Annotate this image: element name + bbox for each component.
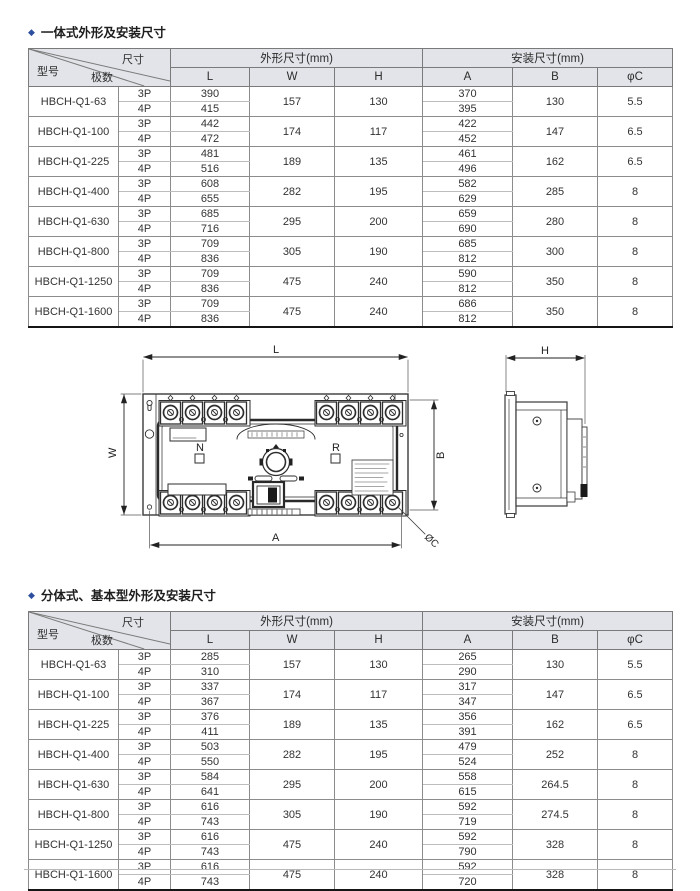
poles-3p-cell: 3P: [119, 267, 171, 282]
install-a-3p-cell: 370: [423, 87, 513, 102]
length-4p-cell: 516: [171, 162, 250, 177]
width-cell: 475: [250, 830, 335, 860]
col-header-H: H: [335, 631, 423, 650]
height-cell: 195: [335, 740, 423, 770]
install-a-3p-cell: 592: [423, 860, 513, 875]
model-cell: HBCH-Q1-100: [29, 680, 119, 710]
col-header-W: W: [250, 631, 335, 650]
table-row: HBCH-Q1-633P2851571302651305.5: [29, 650, 673, 665]
length-3p-cell: 608: [171, 177, 250, 192]
section1-title: ◆ 一体式外形及安装尺寸: [28, 22, 672, 41]
height-cell: 135: [335, 147, 423, 177]
switch-title-strip: [248, 431, 304, 438]
section2-title: ◆ 分体式、基本型外形及安装尺寸: [28, 585, 672, 604]
hole-diameter-cell: 5.5: [598, 650, 673, 680]
terminal-strip-top-left: [159, 401, 250, 427]
install-b-cell: 252: [513, 740, 598, 770]
col-header-A: A: [423, 68, 513, 87]
height-cell: 240: [335, 830, 423, 860]
width-cell: 157: [250, 87, 335, 117]
height-cell: 200: [335, 770, 423, 800]
col-header-A: A: [423, 631, 513, 650]
model-cell: HBCH-Q1-400: [29, 177, 119, 207]
install-b-cell: 285: [513, 177, 598, 207]
install-b-cell: 130: [513, 650, 598, 680]
hole-diameter-cell: 5.5: [598, 87, 673, 117]
width-cell: 174: [250, 117, 335, 147]
install-a-3p-cell: 265: [423, 650, 513, 665]
length-3p-cell: 616: [171, 830, 250, 845]
hole-diameter-cell: 8: [598, 297, 673, 328]
length-4p-cell: 411: [171, 725, 250, 740]
poles-3p-cell: 3P: [119, 177, 171, 192]
poles-3p-cell: 3P: [119, 770, 171, 785]
install-a-3p-cell: 582: [423, 177, 513, 192]
width-cell: 305: [250, 800, 335, 830]
width-cell: 189: [250, 710, 335, 740]
width-cell: 174: [250, 680, 335, 710]
technical-drawing: L W: [28, 342, 672, 575]
install-a-4p-cell: 720: [423, 875, 513, 891]
hole-diameter-cell: 8: [598, 207, 673, 237]
hole-diameter-cell: 8: [598, 770, 673, 800]
table-row: HBCH-Q1-2253P3761891353561626.5: [29, 710, 673, 725]
width-cell: 295: [250, 770, 335, 800]
front-view: L W: [107, 344, 447, 550]
install-a-3p-cell: 590: [423, 267, 513, 282]
hole-diameter-cell: 6.5: [598, 147, 673, 177]
table-row: HBCH-Q1-6303P6852952006592808: [29, 207, 673, 222]
outline-installation-drawing: L W: [28, 342, 672, 570]
install-b-cell: 280: [513, 207, 598, 237]
poles-4p-cell: 4P: [119, 725, 171, 740]
length-3p-cell: 616: [171, 800, 250, 815]
install-a-4p-cell: 452: [423, 132, 513, 147]
diamond-bullet-icon: ◆: [28, 591, 35, 600]
install-a-3p-cell: 479: [423, 740, 513, 755]
width-cell: 282: [250, 740, 335, 770]
install-b-cell: 300: [513, 237, 598, 267]
model-cell: HBCH-Q1-800: [29, 237, 119, 267]
table-row: HBCH-Q1-8003P616305190592274.58: [29, 800, 673, 815]
width-cell: 282: [250, 177, 335, 207]
poles-3p-cell: 3P: [119, 800, 171, 815]
install-b-cell: 328: [513, 830, 598, 860]
length-4p-cell: 367: [171, 695, 250, 710]
install-a-3p-cell: 685: [423, 237, 513, 252]
install-a-4p-cell: 347: [423, 695, 513, 710]
height-cell: 117: [335, 117, 423, 147]
length-3p-cell: 442: [171, 117, 250, 132]
install-b-cell: 274.5: [513, 800, 598, 830]
poles-4p-cell: 4P: [119, 132, 171, 147]
table-row: HBCH-Q1-16003P7094752406863508: [29, 297, 673, 312]
length-4p-cell: 641: [171, 785, 250, 800]
length-4p-cell: 716: [171, 222, 250, 237]
length-4p-cell: 836: [171, 252, 250, 267]
model-cell: HBCH-Q1-800: [29, 800, 119, 830]
height-cell: 240: [335, 860, 423, 891]
model-cell: HBCH-Q1-630: [29, 770, 119, 800]
outline-group-header: 外形尺寸(mm): [171, 612, 423, 631]
poles-3p-cell: 3P: [119, 147, 171, 162]
poles-4p-cell: 4P: [119, 845, 171, 860]
col-header-W: W: [250, 68, 335, 87]
dim-label-phiC: ØC: [422, 532, 441, 550]
table-row: HBCH-Q1-6303P584295200558264.58: [29, 770, 673, 785]
poles-4p-cell: 4P: [119, 695, 171, 710]
table-row: HBCH-Q1-2253P4811891354611626.5: [29, 147, 673, 162]
n-source-label: N: [196, 442, 204, 454]
length-3p-cell: 709: [171, 267, 250, 282]
poles-4p-cell: 4P: [119, 192, 171, 207]
poles-3p-cell: 3P: [119, 87, 171, 102]
table-row: HBCH-Q1-633P3901571303701305.5: [29, 87, 673, 102]
length-3p-cell: 685: [171, 207, 250, 222]
hole-diameter-cell: 6.5: [598, 710, 673, 740]
model-cell: HBCH-Q1-100: [29, 117, 119, 147]
col-header-B: B: [513, 68, 598, 87]
length-4p-cell: 743: [171, 815, 250, 830]
length-4p-cell: 836: [171, 312, 250, 328]
col-header-phiC: φC: [598, 68, 673, 87]
hole-diameter-cell: 6.5: [598, 117, 673, 147]
height-cell: 195: [335, 177, 423, 207]
install-b-cell: 350: [513, 297, 598, 328]
dim-label-A: A: [272, 532, 280, 544]
header-size-label: 尺寸: [122, 614, 144, 630]
height-cell: 240: [335, 297, 423, 328]
height-cell: 190: [335, 800, 423, 830]
install-a-3p-cell: 356: [423, 710, 513, 725]
table2-body: HBCH-Q1-633P2851571302651305.54P310290HB…: [29, 650, 673, 891]
table-row: HBCH-Q1-12503P7094752405903508: [29, 267, 673, 282]
install-a-4p-cell: 524: [423, 755, 513, 770]
length-3p-cell: 584: [171, 770, 250, 785]
model-cell: HBCH-Q1-1250: [29, 267, 119, 297]
length-3p-cell: 709: [171, 297, 250, 312]
model-cell: HBCH-Q1-63: [29, 650, 119, 680]
poles-4p-cell: 4P: [119, 755, 171, 770]
height-cell: 130: [335, 87, 423, 117]
install-a-4p-cell: 615: [423, 785, 513, 800]
poles-4p-cell: 4P: [119, 102, 171, 117]
width-cell: 475: [250, 297, 335, 328]
table-row: HBCH-Q1-1003P4421741174221476.5: [29, 117, 673, 132]
length-3p-cell: 616: [171, 860, 250, 875]
poles-4p-cell: 4P: [119, 162, 171, 177]
length-4p-cell: 550: [171, 755, 250, 770]
dim-label-W: W: [107, 447, 119, 458]
width-cell: 189: [250, 147, 335, 177]
section1-title-text: 一体式外形及安装尺寸: [41, 22, 166, 41]
width-cell: 475: [250, 267, 335, 297]
dim-label-B: B: [435, 452, 447, 459]
length-3p-cell: 481: [171, 147, 250, 162]
install-b-cell: 328: [513, 860, 598, 891]
install-b-cell: 162: [513, 147, 598, 177]
model-cell: HBCH-Q1-1600: [29, 860, 119, 891]
install-a-4p-cell: 690: [423, 222, 513, 237]
hole-diameter-cell: 8: [598, 237, 673, 267]
hole-diameter-cell: 8: [598, 860, 673, 891]
side-view: H: [505, 345, 588, 518]
install-b-cell: 264.5: [513, 770, 598, 800]
install-a-3p-cell: 558: [423, 770, 513, 785]
header-poles-label: 极数: [91, 632, 113, 648]
poles-4p-cell: 4P: [119, 665, 171, 680]
install-b-cell: 350: [513, 267, 598, 297]
split-basic-dimensions-table: 尺寸 型号 极数 外形尺寸(mm) 安装尺寸(mm) L W H A B φC …: [28, 611, 673, 891]
install-a-3p-cell: 422: [423, 117, 513, 132]
length-4p-cell: 836: [171, 282, 250, 297]
poles-3p-cell: 3P: [119, 297, 171, 312]
width-cell: 305: [250, 237, 335, 267]
table-row: HBCH-Q1-4003P5032821954792528: [29, 740, 673, 755]
header-model-label: 型号: [37, 63, 59, 79]
length-4p-cell: 743: [171, 845, 250, 860]
hole-diameter-cell: 8: [598, 177, 673, 207]
poles-4p-cell: 4P: [119, 312, 171, 328]
table-row: HBCH-Q1-16003P6164752405923288: [29, 860, 673, 875]
install-a-4p-cell: 395: [423, 102, 513, 117]
model-cell: HBCH-Q1-1250: [29, 830, 119, 860]
poles-4p-cell: 4P: [119, 282, 171, 297]
length-3p-cell: 376: [171, 710, 250, 725]
r-source-label: R: [332, 442, 340, 454]
length-3p-cell: 390: [171, 87, 250, 102]
col-header-H: H: [335, 68, 423, 87]
height-cell: 117: [335, 680, 423, 710]
install-a-3p-cell: 461: [423, 147, 513, 162]
width-cell: 295: [250, 207, 335, 237]
length-4p-cell: 472: [171, 132, 250, 147]
install-a-3p-cell: 592: [423, 800, 513, 815]
height-cell: 190: [335, 237, 423, 267]
footer-divider: [24, 869, 676, 870]
install-a-4p-cell: 629: [423, 192, 513, 207]
col-header-L: L: [171, 631, 250, 650]
model-cell: HBCH-Q1-63: [29, 87, 119, 117]
poles-4p-cell: 4P: [119, 875, 171, 891]
col-header-B: B: [513, 631, 598, 650]
install-a-3p-cell: 592: [423, 830, 513, 845]
length-4p-cell: 743: [171, 875, 250, 891]
install-a-4p-cell: 812: [423, 312, 513, 328]
header-poles-label: 极数: [91, 69, 113, 85]
datasheet-page: ◆ 一体式外形及安装尺寸 尺寸 型号 极数 外形尺寸(mm) 安装尺寸(mm): [0, 0, 700, 886]
dim-label-H: H: [541, 345, 549, 357]
model-cell: HBCH-Q1-630: [29, 207, 119, 237]
width-cell: 157: [250, 650, 335, 680]
hole-diameter-cell: 8: [598, 740, 673, 770]
length-4p-cell: 655: [171, 192, 250, 207]
header-model-label: 型号: [37, 626, 59, 642]
length-3p-cell: 503: [171, 740, 250, 755]
hole-diameter-cell: 8: [598, 800, 673, 830]
integrated-dimensions-table: 尺寸 型号 极数 外形尺寸(mm) 安装尺寸(mm) L W H A B φC …: [28, 48, 673, 328]
install-a-3p-cell: 686: [423, 297, 513, 312]
poles-3p-cell: 3P: [119, 830, 171, 845]
table1-body: HBCH-Q1-633P3901571303701305.54P415395HB…: [29, 87, 673, 328]
poles-3p-cell: 3P: [119, 680, 171, 695]
install-a-4p-cell: 790: [423, 845, 513, 860]
length-4p-cell: 415: [171, 102, 250, 117]
hole-diameter-cell: 6.5: [598, 680, 673, 710]
install-a-4p-cell: 290: [423, 665, 513, 680]
height-cell: 135: [335, 710, 423, 740]
table-row: HBCH-Q1-1003P3371741173171476.5: [29, 680, 673, 695]
diamond-bullet-icon: ◆: [28, 28, 35, 37]
length-3p-cell: 709: [171, 237, 250, 252]
model-cell: HBCH-Q1-1600: [29, 297, 119, 328]
poles-4p-cell: 4P: [119, 222, 171, 237]
install-a-4p-cell: 812: [423, 282, 513, 297]
hole-diameter-cell: 8: [598, 830, 673, 860]
poles-3p-cell: 3P: [119, 740, 171, 755]
length-3p-cell: 337: [171, 680, 250, 695]
nameplate: [352, 460, 393, 495]
install-group-header: 安装尺寸(mm): [423, 612, 673, 631]
poles-4p-cell: 4P: [119, 815, 171, 830]
poles-4p-cell: 4P: [119, 252, 171, 267]
outline-group-header: 外形尺寸(mm): [171, 49, 423, 68]
install-a-4p-cell: 812: [423, 252, 513, 267]
table-row: HBCH-Q1-4003P6082821955822858: [29, 177, 673, 192]
terminal-strip-top-right: [315, 401, 406, 427]
install-a-4p-cell: 391: [423, 725, 513, 740]
poles-3p-cell: 3P: [119, 650, 171, 665]
install-b-cell: 147: [513, 117, 598, 147]
install-a-3p-cell: 659: [423, 207, 513, 222]
poles-4p-cell: 4P: [119, 785, 171, 800]
width-cell: 475: [250, 860, 335, 891]
model-cell: HBCH-Q1-225: [29, 147, 119, 177]
poles-3p-cell: 3P: [119, 207, 171, 222]
header-size-label: 尺寸: [122, 51, 144, 67]
col-header-phiC: φC: [598, 631, 673, 650]
install-b-cell: 147: [513, 680, 598, 710]
install-b-cell: 162: [513, 710, 598, 740]
model-cell: HBCH-Q1-400: [29, 740, 119, 770]
install-a-3p-cell: 317: [423, 680, 513, 695]
table-row: HBCH-Q1-8003P7093051906853008: [29, 237, 673, 252]
model-cell: HBCH-Q1-225: [29, 710, 119, 740]
diagonal-header-cell: 尺寸 型号 极数: [29, 49, 171, 87]
length-4p-cell: 310: [171, 665, 250, 680]
install-a-4p-cell: 719: [423, 815, 513, 830]
section2-title-text: 分体式、基本型外形及安装尺寸: [41, 585, 216, 604]
hole-diameter-cell: 8: [598, 267, 673, 297]
col-header-L: L: [171, 68, 250, 87]
diagonal-header-cell: 尺寸 型号 极数: [29, 612, 171, 650]
dim-label-L: L: [273, 344, 279, 356]
install-b-cell: 130: [513, 87, 598, 117]
install-group-header: 安装尺寸(mm): [423, 49, 673, 68]
poles-3p-cell: 3P: [119, 710, 171, 725]
poles-3p-cell: 3P: [119, 860, 171, 875]
height-cell: 200: [335, 207, 423, 237]
height-cell: 240: [335, 267, 423, 297]
length-3p-cell: 285: [171, 650, 250, 665]
table-row: HBCH-Q1-12503P6164752405923288: [29, 830, 673, 845]
poles-3p-cell: 3P: [119, 117, 171, 132]
install-a-4p-cell: 496: [423, 162, 513, 177]
poles-3p-cell: 3P: [119, 237, 171, 252]
height-cell: 130: [335, 650, 423, 680]
